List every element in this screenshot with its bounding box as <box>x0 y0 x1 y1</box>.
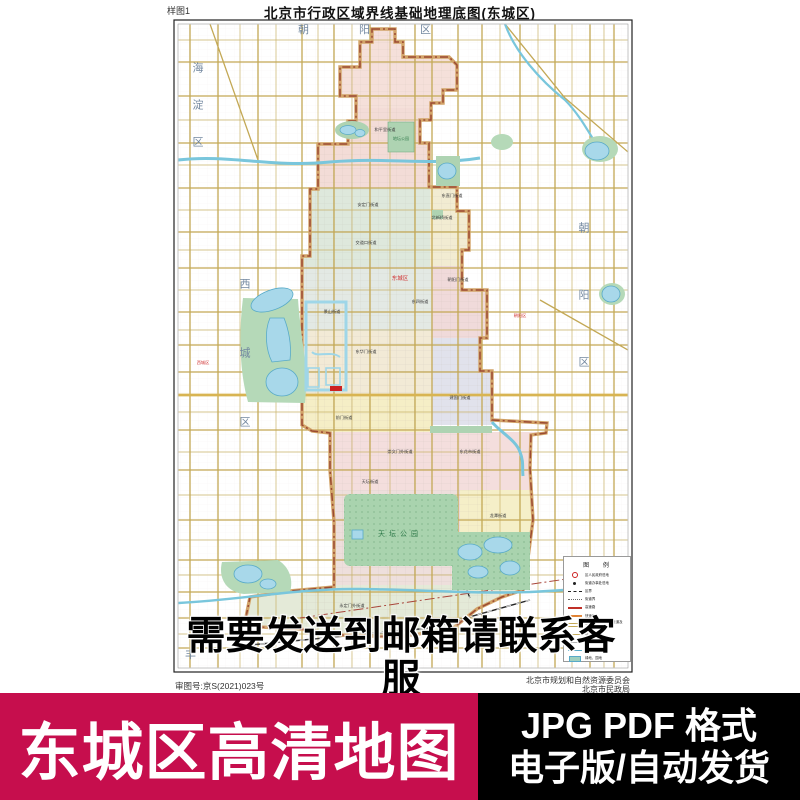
contact-notice-overlay: 需要发送到邮箱请联系客服 <box>170 616 632 702</box>
street-label: 安定门街道 <box>358 201 380 208</box>
street-label: 建国门街道 <box>450 394 472 401</box>
base-map: 海淀区 朝阳区 西城区 朝阳区 丰 东城区 西城区 朝阳区 天坛公园 地坛公园 … <box>0 0 800 693</box>
legend-title: 图 例 <box>571 560 627 569</box>
street-border-icon <box>567 599 582 600</box>
street-label: 东花市街道 <box>460 448 482 455</box>
street-label: 东四街道 <box>412 298 430 305</box>
label-xicheng: 西城区 <box>238 278 251 485</box>
red-label-right: 朝阳区 <box>514 312 527 319</box>
street-label: 北新桥街道 <box>432 214 454 221</box>
label-chaoyang-right: 朝阳区 <box>577 222 590 423</box>
label-tiantan-park: 天坛公园 <box>378 529 422 538</box>
district-border-icon <box>567 591 582 592</box>
banner-delivery-line: 电子版/自动发货 <box>508 748 770 788</box>
street-label: 天坛街道 <box>362 478 380 485</box>
red-label-left: 西城区 <box>197 359 210 366</box>
street-label: 和平里街道 <box>375 126 397 133</box>
street-label: 东直门街道 <box>442 192 464 199</box>
street-label: 前门街道 <box>336 414 354 421</box>
street-label: 龙潭街道 <box>490 512 508 519</box>
label-dongcheng-red: 东城区 <box>392 274 409 282</box>
gov-seat-icon <box>567 572 582 578</box>
street-label: 崇文门外街道 <box>387 448 413 455</box>
street-label: 东华门街道 <box>356 348 378 355</box>
label-haidian: 海淀区 <box>191 61 204 173</box>
street-label: 交道口街道 <box>356 239 378 246</box>
street-label: 景山街道 <box>324 308 342 315</box>
street-office-icon <box>567 582 582 585</box>
expressway-icon <box>567 607 582 609</box>
street-label: 永定门外街道 <box>339 602 365 609</box>
street-label: 朝阳门街道 <box>448 276 470 283</box>
banner-product-title: 东城区高清地图 <box>0 693 478 800</box>
label-ditan-park: 地坛公园 <box>393 135 409 141</box>
label-chaoyang-top: 朝阳区 <box>298 23 481 36</box>
banner-format-info: JPG PDF 格式 电子版/自动发货 <box>478 693 800 800</box>
product-image: { "header": { "sample_label": "样图1", "ti… <box>0 0 800 800</box>
banner-title-text: 东城区高清地图 <box>18 702 459 792</box>
promo-banner: 东城区高清地图 JPG PDF 格式 电子版/自动发货 <box>0 693 800 800</box>
banner-format-line: JPG PDF 格式 <box>521 706 757 746</box>
